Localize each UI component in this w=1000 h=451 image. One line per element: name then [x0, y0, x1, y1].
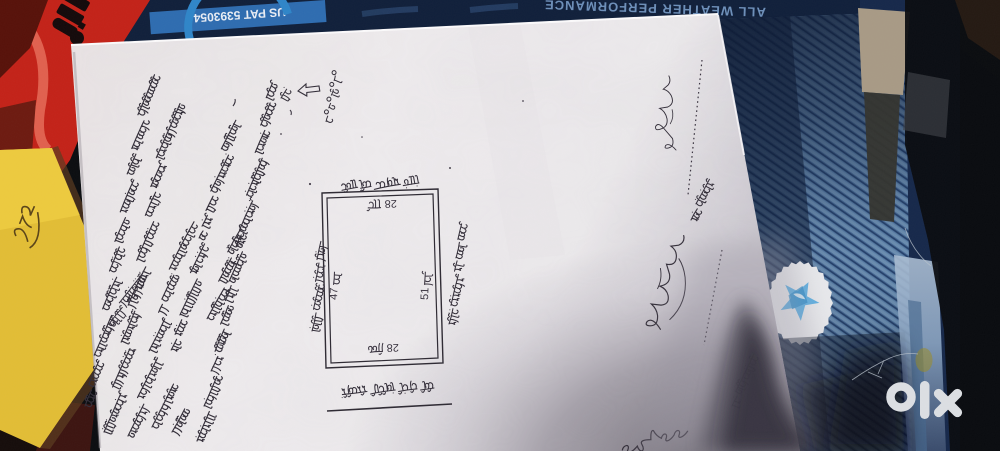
svg-text:51: 51: [419, 287, 431, 300]
svg-text:47: 47: [328, 287, 340, 300]
svg-text:28: 28: [384, 197, 397, 209]
svg-text:28: 28: [386, 341, 399, 353]
